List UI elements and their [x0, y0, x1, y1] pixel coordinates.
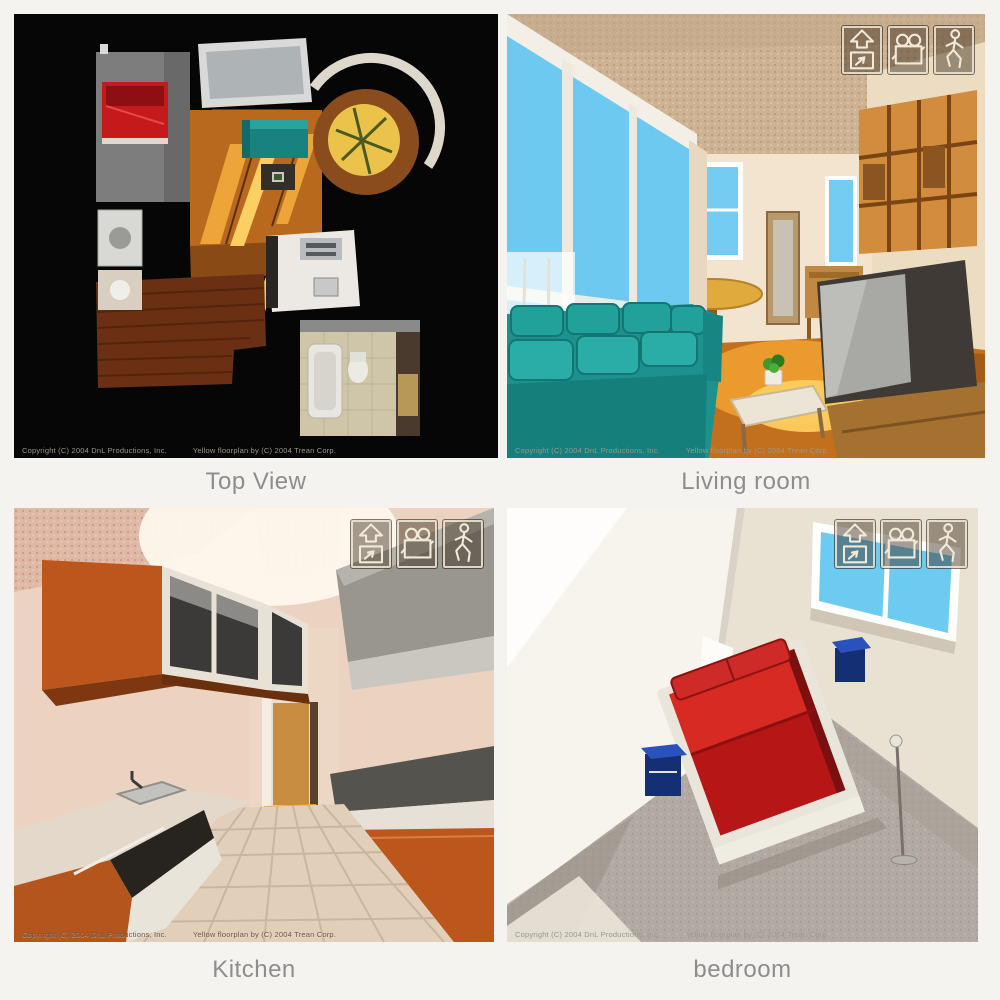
walkthrough-view-button[interactable] [443, 520, 483, 568]
floorplan-render [14, 14, 498, 458]
living-room-render [507, 14, 985, 458]
camera-view-button[interactable] [397, 520, 437, 568]
living-room-caption: Living room [507, 462, 985, 502]
apartment-views-page: Copyright (C) 2004 DnL Productions, Inc.… [0, 0, 1000, 1000]
walkthrough-view-button[interactable] [927, 520, 967, 568]
movie-camera-icon [890, 28, 926, 72]
bedroom-caption: bedroom [507, 950, 978, 990]
walking-person-icon [929, 522, 965, 566]
walkthrough-view-button[interactable] [934, 26, 974, 74]
camera-view-button[interactable] [888, 26, 928, 74]
floorplan-arrow-icon [844, 28, 880, 72]
floorplan-view-button[interactable] [351, 520, 391, 568]
kitchen-caption: Kitchen [14, 950, 494, 990]
floorplan-view-button[interactable] [842, 26, 882, 74]
floorplan-arrow-icon [353, 522, 389, 566]
view-toolbar [835, 520, 967, 568]
kitchen-render [14, 508, 494, 942]
living-room-image: Copyright (C) 2004 DnL Productions, Inc.… [507, 14, 985, 458]
floorplan-arrow-icon [837, 522, 873, 566]
movie-camera-icon [399, 522, 435, 566]
top-view-image: Copyright (C) 2004 DnL Productions, Inc.… [14, 14, 498, 458]
camera-view-button[interactable] [881, 520, 921, 568]
kitchen-image: Copyright (C) 2004 DnL Productions, Inc.… [14, 508, 494, 942]
floorplan-view-button[interactable] [835, 520, 875, 568]
walking-person-icon [445, 522, 481, 566]
bedroom-render [507, 508, 978, 942]
bedroom-image: Copyright (C) 2004 DnL Productions, Inc.… [507, 508, 978, 942]
top-view-caption: Top View [14, 462, 498, 502]
movie-camera-icon [883, 522, 919, 566]
walking-person-icon [936, 28, 972, 72]
view-toolbar [842, 26, 974, 74]
view-toolbar [351, 520, 483, 568]
